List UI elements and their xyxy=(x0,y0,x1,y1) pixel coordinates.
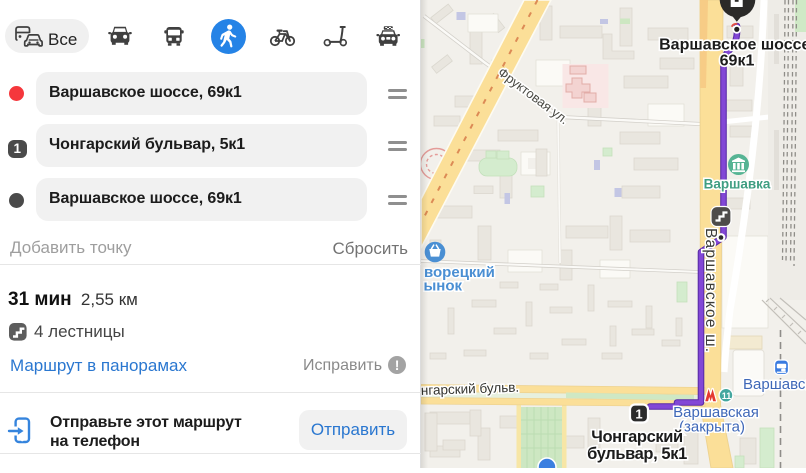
svg-text:бульвар, 5к1: бульвар, 5к1 xyxy=(587,445,687,463)
svg-text:11: 11 xyxy=(722,391,732,401)
svg-text:Варшавка: Варшавка xyxy=(704,177,771,192)
svg-text:(закрыта): (закрыта) xyxy=(679,419,745,436)
svg-text:69к1: 69к1 xyxy=(720,53,755,70)
svg-text:1: 1 xyxy=(635,407,642,422)
svg-text:Чонгарский: Чонгарский xyxy=(591,428,683,446)
svg-text:Варшавское шоссе,: Варшавское шоссе, xyxy=(659,37,806,54)
svg-text:Варшавск: Варшавск xyxy=(743,376,806,393)
svg-text:Варшавское ш.: Варшавское ш. xyxy=(702,228,719,353)
svg-text:ынок: ынок xyxy=(424,278,463,295)
